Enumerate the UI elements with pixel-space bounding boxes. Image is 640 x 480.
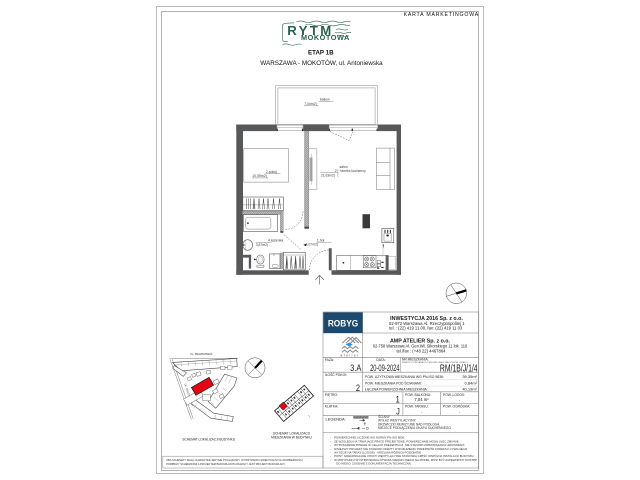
svg-text:OBA SCHEMATY MAJĄ CHARAKTER JE: OBA SCHEMATY MAJĄ CHARAKTER JEDYNIE POGL… [166, 457, 303, 462]
svg-text:2.pokój: 2.pokój [266, 170, 277, 174]
svg-text:3.A: 3.A [350, 362, 361, 373]
svg-text:J: J [307, 414, 311, 418]
svg-text:10,59m2): 10,59m2) [252, 174, 266, 178]
svg-text:7,04m2): 7,04m2) [304, 102, 316, 106]
svg-text:4,07m2): 4,07m2) [306, 243, 318, 247]
svg-text:RM/1B/J/1/4: RM/1B/J/1/4 [440, 362, 478, 374]
svg-text:POW. LOGGII:: POW. LOGGII: [443, 393, 465, 397]
svg-text:PIĘTRO:: PIĘTRO: [325, 393, 338, 397]
svg-text:-: - [459, 409, 461, 414]
svg-text:WARSZAWA - MOKOTÓW, ul. Antoni: WARSZAWA - MOKOTÓW, ul. Antoniewska [260, 58, 383, 67]
svg-text:ILOŚĆ POKOI:: ILOŚĆ POKOI: [325, 372, 347, 377]
svg-text:tel./fax : (+48 22) 4467864: tel./fax : (+48 22) 4467864 [396, 348, 446, 353]
svg-text:4.łazienka: 4.łazienka [268, 239, 283, 243]
svg-text:UL. PRAWDZIWKA: UL. PRAWDZIWKA [190, 352, 213, 356]
svg-text:21,03m2): 21,03m2) [321, 174, 335, 178]
svg-text:NR MIESZKANIA:: NR MIESZKANIA: [402, 357, 429, 361]
svg-text:1: 1 [396, 394, 400, 405]
svg-text:ROBYG: ROBYG [328, 318, 358, 329]
svg-text:-: - [459, 398, 461, 403]
svg-text:ETAP 1B: ETAP 1B [308, 50, 334, 57]
svg-text:POW. BALKONU:: POW. BALKONU: [405, 393, 431, 397]
svg-text:J: J [396, 406, 400, 417]
svg-text:3,87m2): 3,87m2) [256, 243, 268, 247]
svg-text:39,35m²: 39,35m² [462, 374, 477, 379]
svg-text:DO NIEGO, ZGODNIE Z DOKUMENTAC: DO NIEGO, ZGODNIE Z DOKUMENTACJĄ TECHNIC… [336, 461, 411, 465]
svg-text:0,84m²: 0,84m² [465, 380, 478, 385]
svg-text:-: - [421, 409, 423, 414]
svg-text:MIESZKANIA W BUDYNKU: MIESZKANIA W BUDYNKU [271, 436, 312, 440]
svg-text:atelier: atelier [340, 353, 359, 357]
svg-text:DATA:: DATA: [376, 358, 385, 362]
svg-text:balkon: balkon [320, 98, 330, 102]
svg-text:+aneks kuchenny: +aneks kuchenny [339, 169, 366, 173]
svg-text:MOKOTOWA: MOKOTOWA [301, 33, 350, 42]
svg-text:LEGENDA:: LEGENDA: [326, 416, 346, 421]
svg-text:ŁĄCZNA POWIERZCHNIA MIESZKANIA: ŁĄCZNA POWIERZCHNIA MIESZKANIA: [365, 387, 428, 391]
svg-text:SCHEMAT LOKALIZACJI BUDYNKU: SCHEMAT LOKALIZACJI BUDYNKU [182, 438, 235, 442]
svg-text:POW. TARASU:: POW. TARASU: [405, 405, 429, 409]
svg-text:POW. UŻYTKOWA MIESZKANIA WG PN: POW. UŻYTKOWA MIESZKANIA WG PN-ISO 9836: [365, 374, 444, 379]
svg-text:POW. OGRÓDKA:: POW. OGRÓDKA: [443, 404, 470, 409]
svg-text:2: 2 [356, 382, 360, 393]
svg-text:POW. MIESZKANIA POD ŚCIANAMI:: POW. MIESZKANIA POD ŚCIANAMI: [365, 380, 422, 385]
svg-text:40,19m²: 40,19m² [462, 386, 477, 391]
svg-text:FAZA:: FAZA: [325, 358, 334, 362]
svg-text:tel. : (22) 419 11 00, fax: (2: tel. : (22) 419 11 00, fax: (22) 419 11 … [389, 326, 463, 331]
svg-text:2: 2 [335, 169, 337, 173]
svg-text:KLATKA:: KLATKA: [325, 405, 338, 409]
svg-text:7,04 m²: 7,04 m² [414, 397, 429, 402]
svg-text:20-09-2024: 20-09-2024 [370, 363, 400, 374]
svg-text:MIEJSCE PODŁĄCZENIA OKAPU KUCH: MIEJSCE PODŁĄCZENIA OKAPU KUCHENNEGO [378, 426, 451, 430]
